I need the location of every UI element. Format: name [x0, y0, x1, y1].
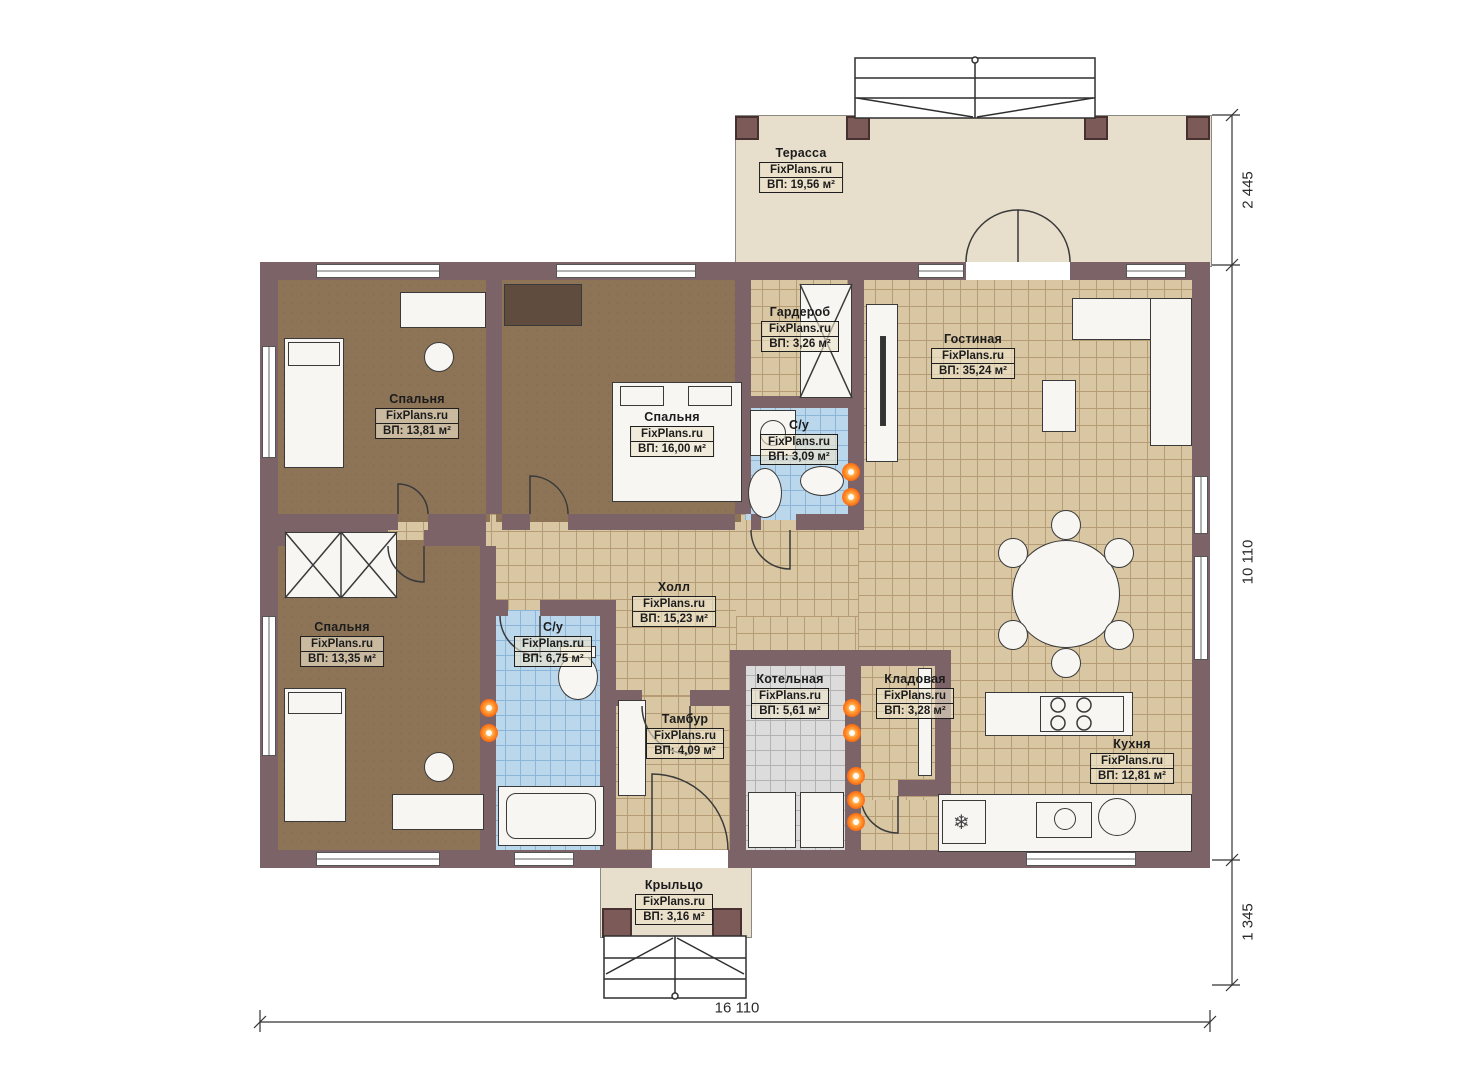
dining-chair — [1051, 510, 1081, 540]
room-info-box: FixPlans.ru ВП: 3,16 м² — [635, 894, 713, 925]
wall-bedrooms-divider — [486, 280, 502, 514]
watermark: FixPlans.ru — [1091, 754, 1173, 769]
heat-marker — [847, 813, 865, 831]
wall-hall-north-b — [428, 514, 486, 530]
room-info-box: FixPlans.ru ВП: 35,24 м² — [931, 348, 1015, 379]
wardrobe-cabinet — [504, 284, 582, 326]
wall-bath2-north-b — [540, 600, 616, 616]
front-door-opening[interactable] — [652, 850, 728, 868]
desk — [400, 292, 486, 328]
dining-chair — [1104, 620, 1134, 650]
watermark: FixPlans.ru — [647, 729, 723, 744]
wall-hall-north-d — [568, 514, 735, 530]
wall-hall-north-c — [502, 514, 530, 530]
room-area: ВП: 6,75 м² — [515, 652, 591, 666]
window-bath2-bottom — [514, 852, 574, 866]
tv-screen — [880, 336, 886, 426]
dimension-bottom: 16 110 — [715, 1000, 760, 1017]
room-info-box: FixPlans.ru ВП: 12,81 м² — [1090, 753, 1174, 784]
room-name: Крыльцо — [635, 878, 713, 892]
window-bedroom3-left — [262, 616, 276, 756]
snowflake-icon: ❄ — [953, 810, 970, 835]
pillow — [620, 386, 664, 406]
room-name: Котельная — [751, 672, 829, 686]
room-info-box: FixPlans.ru ВП: 13,81 м² — [375, 408, 459, 439]
room-area: ВП: 5,61 м² — [752, 704, 828, 718]
chair — [424, 752, 454, 782]
watermark: FixPlans.ru — [877, 689, 953, 704]
room-name: С/у — [514, 620, 592, 634]
room-info-box: FixPlans.ru ВП: 5,61 м² — [751, 688, 829, 719]
terrace-post-1 — [735, 116, 759, 140]
window-living-right-2 — [1194, 556, 1208, 660]
watermark: FixPlans.ru — [301, 637, 383, 652]
heat-marker — [842, 488, 860, 506]
room-name: Кухня — [1090, 737, 1174, 751]
room-name: С/у — [760, 418, 838, 432]
room-label-bathroom2: С/у FixPlans.ru ВП: 6,75 м² — [514, 620, 592, 667]
desk — [392, 794, 484, 830]
heat-marker — [480, 724, 498, 742]
porch-post-left — [602, 908, 632, 938]
wall-boiler-north — [730, 650, 861, 666]
window-bedroom1-left — [262, 346, 276, 458]
room-area: ВП: 12,81 м² — [1091, 769, 1173, 783]
room-area: ВП: 13,35 м² — [301, 652, 383, 666]
window-bedroom3-bottom — [316, 852, 440, 866]
window-living-top-2 — [1126, 264, 1186, 278]
dining-chair — [1051, 648, 1081, 678]
room-label-porch: Крыльцо FixPlans.ru ВП: 3,16 м² — [635, 878, 713, 925]
room-area: ВП: 3,28 м² — [877, 704, 953, 718]
watermark: FixPlans.ru — [762, 322, 838, 337]
room-label-bedroom2: Спальня FixPlans.ru ВП: 16,00 м² — [630, 410, 714, 457]
room-label-hall: Холл FixPlans.ru ВП: 15,23 м² — [632, 580, 716, 627]
room-info-box: FixPlans.ru ВП: 16,00 м² — [630, 426, 714, 457]
room-area: ВП: 3,09 м² — [761, 450, 837, 464]
room-area: ВП: 16,00 м² — [631, 442, 713, 456]
boiler-unit — [748, 792, 796, 848]
room-label-bathroom1: С/у FixPlans.ru ВП: 3,09 м² — [760, 418, 838, 465]
room-label-kitchen: Кухня FixPlans.ru ВП: 12,81 м² — [1090, 737, 1174, 784]
terrace-door-opening[interactable] — [966, 262, 1070, 280]
room-label-wardrobe: Гардероб FixPlans.ru ВП: 3,26 м² — [761, 305, 839, 352]
room-label-bedroom1: Спальня FixPlans.ru ВП: 13,81 м² — [375, 392, 459, 439]
watermark: FixPlans.ru — [633, 597, 715, 612]
heat-marker — [847, 791, 865, 809]
room-info-box: FixPlans.ru ВП: 19,56 м² — [759, 162, 843, 193]
watermark: FixPlans.ru — [515, 637, 591, 652]
pillow — [288, 342, 340, 366]
room-area: ВП: 13,81 м² — [376, 424, 458, 438]
sofa-chaise — [1150, 298, 1192, 446]
wall-bedroom3-north-b — [424, 530, 486, 546]
room-area: ВП: 35,24 м² — [932, 364, 1014, 378]
room-name: Гардероб — [761, 305, 839, 319]
watermark: FixPlans.ru — [636, 895, 712, 910]
terrace-post-2 — [846, 116, 870, 140]
sink — [748, 468, 782, 518]
heat-marker — [843, 699, 861, 717]
room-label-bedroom3: Спальня FixPlans.ru ВП: 13,35 м² — [300, 620, 384, 667]
boiler-equipment — [800, 792, 844, 848]
room-info-box: FixPlans.ru ВП: 6,75 м² — [514, 636, 592, 667]
room-name: Холл — [632, 580, 716, 594]
dining-chair — [998, 538, 1028, 568]
hall-closet — [285, 532, 397, 598]
pillow — [688, 386, 732, 406]
terrace-post-4 — [1186, 116, 1210, 140]
room-label-vestibule: Тамбур FixPlans.ru ВП: 4,09 м² — [646, 712, 724, 759]
watermark: FixPlans.ru — [761, 435, 837, 450]
room-area: ВП: 19,56 м² — [760, 178, 842, 192]
coffee-table — [1042, 380, 1076, 432]
room-area: ВП: 15,23 м² — [633, 612, 715, 626]
heat-marker — [480, 699, 498, 717]
wall-hall-north-a — [278, 514, 398, 530]
stove — [1040, 696, 1124, 732]
watermark: FixPlans.ru — [932, 349, 1014, 364]
wall-bath2-north-a — [496, 600, 508, 616]
watermark: FixPlans.ru — [752, 689, 828, 704]
dining-chair — [1104, 538, 1134, 568]
window-living-top-1 — [918, 264, 964, 278]
window-living-right-1 — [1194, 476, 1208, 534]
pillow — [288, 692, 342, 714]
wall-boiler-west — [730, 650, 746, 850]
room-info-box: FixPlans.ru ВП: 4,09 м² — [646, 728, 724, 759]
room-info-box: FixPlans.ru ВП: 3,28 м² — [876, 688, 954, 719]
room-name: Кладовая — [876, 672, 954, 686]
watermark: FixPlans.ru — [760, 163, 842, 178]
room-info-box: FixPlans.ru ВП: 13,35 м² — [300, 636, 384, 667]
room-label-boiler: Котельная FixPlans.ru ВП: 5,61 м² — [751, 672, 829, 719]
room-name: Спальня — [375, 392, 459, 406]
room-area: ВП: 3,26 м² — [762, 337, 838, 351]
room-name: Спальня — [630, 410, 714, 424]
room-area: ВП: 3,16 м² — [636, 910, 712, 924]
room-label-pantry: Кладовая FixPlans.ru ВП: 3,28 м² — [876, 672, 954, 719]
floor-plan-canvas: ❄ — [0, 0, 1473, 1080]
watermark: FixPlans.ru — [631, 427, 713, 442]
room-name: Тамбур — [646, 712, 724, 726]
heat-marker — [843, 724, 861, 742]
window-kitchen-bottom — [1026, 852, 1136, 866]
dimension-right-bottom: 1 345 — [1240, 903, 1257, 941]
dimension-right-middle: 10 110 — [1240, 540, 1257, 585]
bathtub-basin — [506, 793, 596, 839]
terrace-post-3 — [1084, 116, 1108, 140]
room-info-box: FixPlans.ru ВП: 3,26 м² — [761, 321, 839, 352]
room-name: Спальня — [300, 620, 384, 634]
kitchen-sink-bowl — [1054, 808, 1076, 830]
wall-hall-north-f — [796, 514, 864, 530]
room-area: ВП: 4,09 м² — [647, 744, 723, 758]
dining-chair — [998, 620, 1028, 650]
room-info-box: FixPlans.ru ВП: 15,23 м² — [632, 596, 716, 627]
porch-post-right — [712, 908, 742, 938]
heat-marker — [842, 463, 860, 481]
room-name: Гостиная — [931, 332, 1015, 346]
room-label-terrace: Терасса FixPlans.ru ВП: 19,56 м² — [759, 146, 843, 193]
room-label-living: Гостиная FixPlans.ru ВП: 35,24 м² — [931, 332, 1015, 379]
bar-stool — [1098, 798, 1136, 836]
dimension-right-top: 2 445 — [1240, 171, 1257, 209]
watermark: FixPlans.ru — [376, 409, 458, 424]
toilet — [800, 466, 844, 496]
chair — [424, 342, 454, 372]
window-bedroom1-top — [316, 264, 440, 278]
window-bedroom2-top — [556, 264, 696, 278]
vestibule-cabinet — [618, 700, 646, 796]
heat-marker — [847, 767, 865, 785]
room-info-box: FixPlans.ru ВП: 3,09 м² — [760, 434, 838, 465]
room-name: Терасса — [759, 146, 843, 160]
